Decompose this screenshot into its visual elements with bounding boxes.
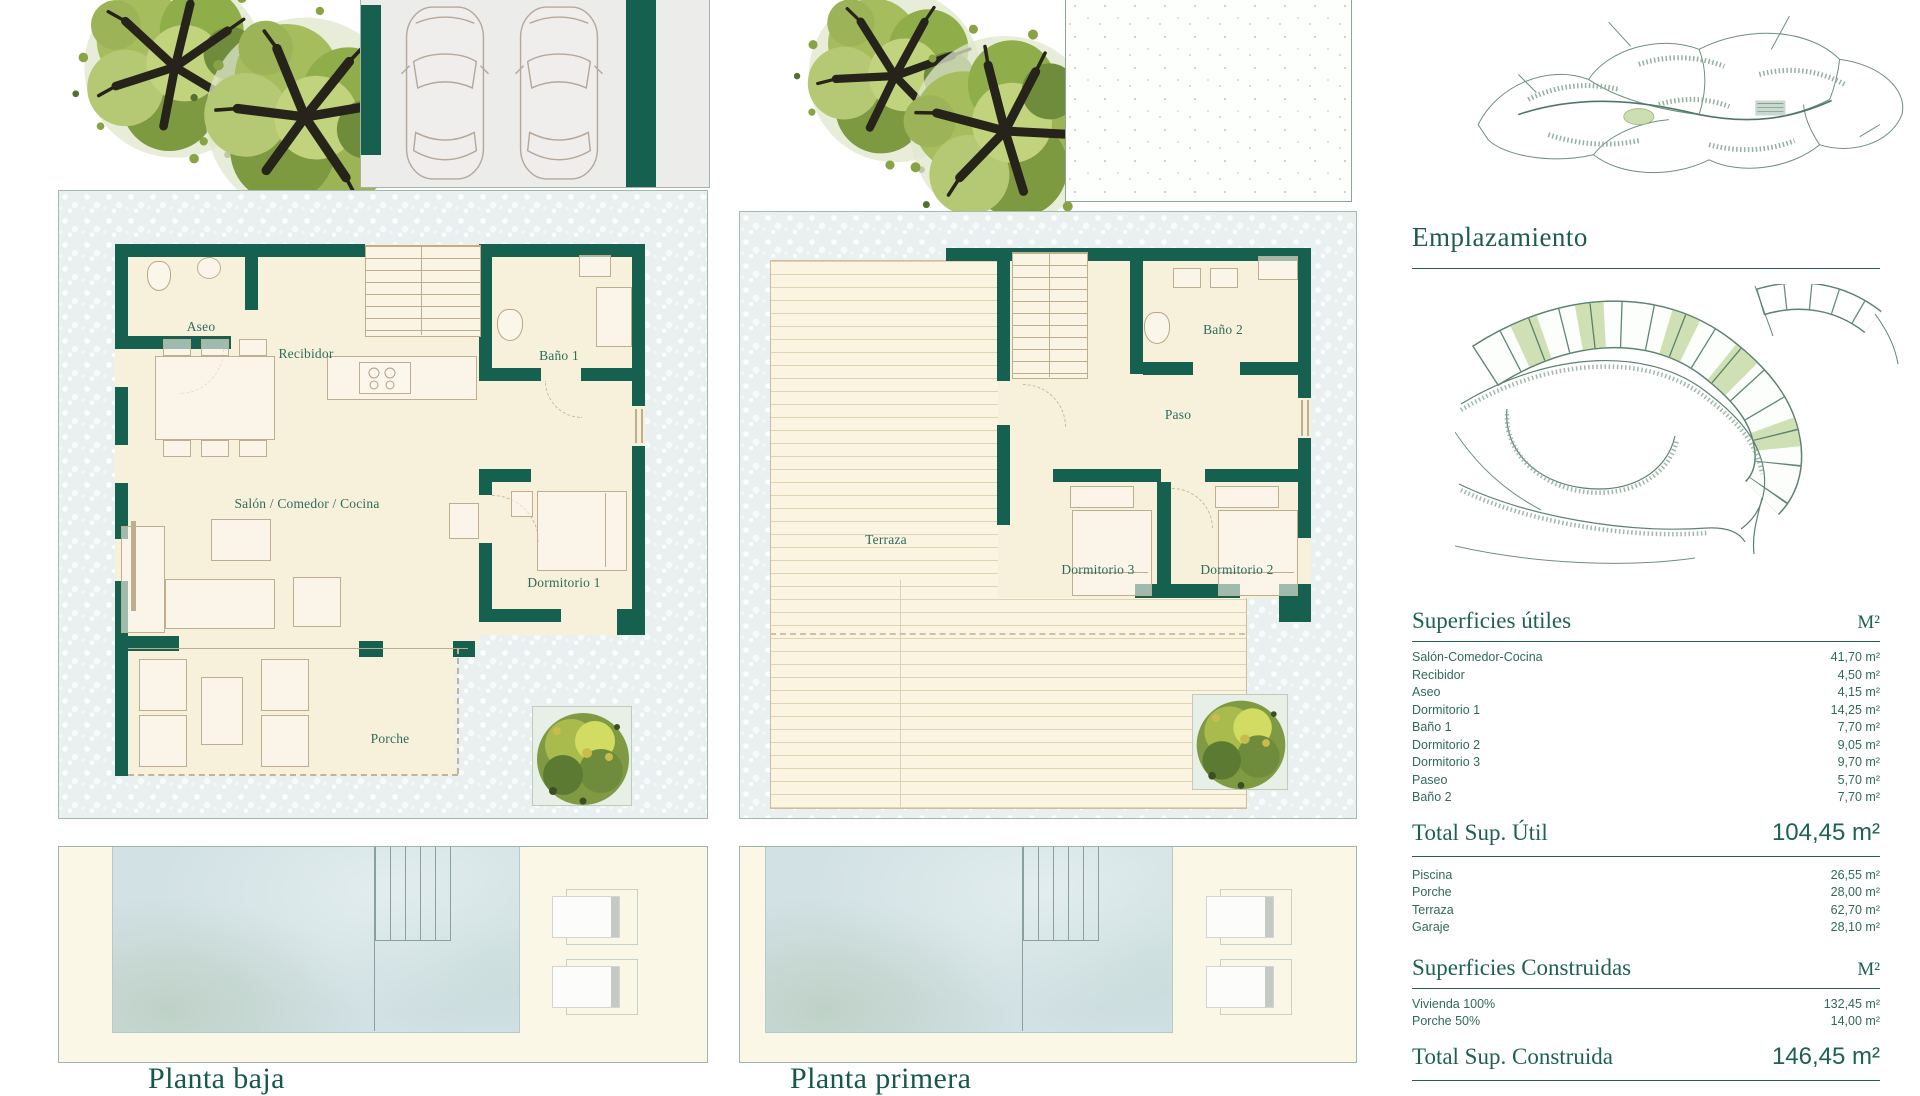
wall	[1298, 248, 1311, 398]
wall	[479, 368, 541, 381]
table-row: Porche 50%14,00 m²	[1412, 1013, 1880, 1031]
wall	[581, 368, 645, 381]
wall	[479, 609, 561, 622]
built-surfaces-header: Superficies Construidas M²	[1412, 955, 1880, 989]
row-value: 4,50 m²	[1838, 667, 1880, 685]
wall	[115, 244, 128, 336]
plan-title-ground: Planta baja	[148, 1062, 285, 1096]
unit-label: M²	[1857, 612, 1880, 634]
outdoor-rows: Piscina26,55 m² Porche28,00 m² Terraza62…	[1412, 857, 1880, 937]
hob-icon	[359, 362, 411, 394]
row-value: 5,70 m²	[1838, 772, 1880, 790]
total-label: Total Sup. Construida	[1412, 1044, 1613, 1070]
pool-divider	[1022, 846, 1023, 1031]
room-label: Dormitorio 3	[1061, 562, 1134, 578]
garage-plan	[360, 0, 710, 188]
useful-surfaces-rows: Salón-Comedor-Cocina41,70 m² Recibidor4,…	[1412, 642, 1880, 807]
kitchen-sink	[449, 503, 479, 539]
chair	[239, 339, 267, 356]
sink-icon	[1210, 268, 1238, 288]
masterplan-map	[1458, 4, 1915, 190]
row-value: 7,70 m²	[1838, 719, 1880, 737]
row-value: 14,25 m²	[1831, 702, 1880, 720]
nightstand	[511, 491, 533, 517]
wall	[617, 609, 645, 635]
table-row: Porche28,00 m²	[1412, 884, 1880, 902]
wall	[1205, 469, 1298, 482]
ground-floor-plan: Aseo Recibidor Baño 1 Salón / Comedor / …	[58, 190, 708, 819]
wall	[632, 244, 645, 406]
surfaces-panel: Superficies útiles M² Salón-Comedor-Coci…	[1412, 608, 1880, 1081]
lawn-square	[1065, 0, 1352, 202]
row-label: Dormitorio 3	[1412, 754, 1480, 772]
table-row: Recibidor4,50 m²	[1412, 667, 1880, 685]
pool-divider	[374, 846, 375, 1031]
table-row: Piscina26,55 m²	[1412, 867, 1880, 885]
sun-lounger	[1206, 889, 1292, 945]
wall	[1143, 362, 1193, 375]
chair	[201, 339, 229, 356]
wall	[997, 425, 1010, 525]
porch-edge	[128, 648, 468, 649]
sink-icon	[197, 257, 221, 279]
room-label: Dormitorio 1	[527, 575, 600, 591]
stair-rail	[1049, 252, 1050, 377]
wall	[626, 0, 656, 187]
sink-icon	[579, 255, 611, 277]
plan-title-upper: Planta primera	[790, 1062, 971, 1096]
pool	[765, 846, 1173, 1033]
bed-pillow-line	[605, 493, 606, 567]
row-label: Piscina	[1412, 867, 1452, 885]
table-row: Garaje28,10 m²	[1412, 919, 1880, 937]
divider	[1412, 268, 1880, 269]
wardrobe	[1070, 486, 1134, 508]
bed	[537, 491, 627, 571]
row-label: Porche	[1412, 884, 1452, 902]
stair-rail	[421, 245, 422, 335]
porch-dashed-edge	[128, 774, 458, 776]
chair	[163, 339, 191, 356]
wall	[1053, 469, 1161, 482]
total-value: 104,45 m²	[1772, 819, 1880, 847]
roof-section-line	[770, 633, 1245, 635]
row-label: Terraza	[1412, 902, 1454, 920]
total-built: Total Sup. Construida 146,45 m²	[1412, 1043, 1880, 1081]
pillar	[359, 641, 383, 657]
row-value: 62,70 m²	[1831, 902, 1880, 920]
room-label: Terraza	[865, 532, 907, 548]
car-icon	[399, 3, 491, 183]
car-icon	[513, 3, 605, 183]
room-label: Baño 1	[539, 348, 579, 364]
table-row: Paseo5,70 m²	[1412, 772, 1880, 790]
stairs	[365, 245, 481, 337]
sofa-chaise	[121, 526, 165, 633]
window	[1301, 400, 1303, 436]
chair	[201, 440, 229, 457]
wall	[245, 244, 258, 310]
armchair	[293, 577, 341, 627]
porch-dashed-edge	[457, 648, 459, 774]
toilet-icon	[1144, 312, 1170, 344]
chair	[239, 440, 267, 457]
row-value: 4,15 m²	[1838, 684, 1880, 702]
row-value: 7,70 m²	[1838, 789, 1880, 807]
wall	[1298, 438, 1311, 538]
deck-joint	[900, 580, 901, 807]
room-label: Baño 2	[1203, 322, 1243, 338]
pool-area-upper	[739, 846, 1357, 1063]
wall	[1240, 362, 1298, 375]
bush-icon	[1187, 689, 1295, 797]
total-label: Total Sup. Útil	[1412, 820, 1548, 846]
row-label: Salón-Comedor-Cocina	[1412, 649, 1543, 667]
sun-lounger	[552, 959, 638, 1015]
table-row: Baño 27,70 m²	[1412, 789, 1880, 807]
wall	[479, 469, 492, 495]
bush-icon	[527, 701, 639, 813]
row-label: Dormitorio 1	[1412, 702, 1480, 720]
table-row: Dormitorio 39,70 m²	[1412, 754, 1880, 772]
row-value: 14,00 m²	[1831, 1013, 1880, 1031]
sun-lounger	[1206, 959, 1292, 1015]
row-value: 41,70 m²	[1831, 649, 1880, 667]
row-label: Dormitorio 2	[1412, 737, 1480, 755]
wall	[479, 244, 645, 257]
total-useful: Total Sup. Útil 104,45 m²	[1412, 819, 1880, 857]
total-value: 146,45 m²	[1772, 1043, 1880, 1071]
bed	[1218, 510, 1298, 596]
chair	[163, 440, 191, 457]
shower-icon	[596, 287, 632, 347]
wall	[632, 446, 645, 635]
window	[641, 409, 643, 443]
window	[1307, 400, 1309, 436]
table-row: Baño 17,70 m²	[1412, 719, 1880, 737]
wall	[361, 5, 381, 155]
row-label: Garaje	[1412, 919, 1450, 937]
bed	[1072, 510, 1152, 596]
table-row: Vivienda 100%132,45 m²	[1412, 996, 1880, 1014]
row-label: Porche 50%	[1412, 1013, 1480, 1031]
row-value: 28,10 m²	[1831, 919, 1880, 937]
wall	[115, 244, 365, 257]
row-label: Vivienda 100%	[1412, 996, 1495, 1014]
row-label: Baño 2	[1412, 789, 1452, 807]
sun-lounger	[552, 889, 638, 945]
pool-steps	[374, 846, 451, 941]
row-value: 9,05 m²	[1838, 737, 1880, 755]
row-value: 9,70 m²	[1838, 754, 1880, 772]
table-title: Superficies Construidas	[1412, 955, 1631, 981]
room-label: Salón / Comedor / Cocina	[234, 496, 379, 512]
stairs	[1012, 252, 1088, 379]
row-label: Paseo	[1412, 772, 1447, 790]
toilet-icon	[147, 261, 171, 291]
sink-icon	[1173, 268, 1201, 288]
room-label: Dormitorio 2	[1200, 562, 1273, 578]
pool-steps	[1022, 846, 1099, 941]
wall	[479, 543, 492, 609]
table-row: Terraza62,70 m²	[1412, 902, 1880, 920]
row-value: 26,55 m²	[1831, 867, 1880, 885]
sofa	[165, 579, 275, 629]
room-label: Aseo	[187, 319, 216, 335]
wall	[1157, 482, 1171, 598]
room-label: Porche	[371, 731, 410, 747]
window	[635, 409, 637, 443]
wardrobe	[1215, 486, 1279, 508]
wall	[997, 248, 1010, 381]
pool	[112, 846, 520, 1033]
porch-chair	[261, 659, 309, 711]
pool-area-ground	[58, 846, 708, 1063]
brochure-page: { "plans": { "ground": { "title": "Plant…	[0, 0, 1920, 1080]
dining-table	[155, 356, 275, 440]
porch-chair	[261, 715, 309, 767]
table-title: Superficies útiles	[1412, 608, 1571, 634]
table-row: Aseo4,15 m²	[1412, 684, 1880, 702]
room-label: Paso	[1165, 407, 1191, 423]
upper-floor-plan: Terraza Baño 2 Paso Dormitorio 3 Dormito…	[739, 211, 1357, 819]
location-title: Emplazamiento	[1412, 222, 1588, 253]
porch-chair	[139, 659, 187, 711]
shower-icon	[1258, 256, 1298, 280]
toilet-icon	[497, 309, 523, 341]
room-label: Recibidor	[278, 346, 333, 362]
porch-table	[201, 677, 243, 745]
table-row: Dormitorio 29,05 m²	[1412, 737, 1880, 755]
row-label: Baño 1	[1412, 719, 1452, 737]
row-label: Recibidor	[1412, 667, 1465, 685]
tv-unit	[131, 521, 136, 611]
porch-chair	[139, 715, 187, 767]
built-surfaces-rows: Vivienda 100%132,45 m² Porche 50%14,00 m…	[1412, 989, 1880, 1031]
table-row: Dormitorio 114,25 m²	[1412, 702, 1880, 720]
wall	[1130, 248, 1143, 374]
row-value: 132,45 m²	[1824, 996, 1880, 1014]
unit-label: M²	[1857, 959, 1880, 981]
row-label: Aseo	[1412, 684, 1441, 702]
coffee-table	[211, 519, 271, 561]
row-value: 28,00 m²	[1831, 884, 1880, 902]
useful-surfaces-header: Superficies útiles M²	[1412, 608, 1880, 642]
wall	[115, 387, 128, 445]
table-row: Salón-Comedor-Cocina41,70 m²	[1412, 649, 1880, 667]
site-map	[1455, 284, 1915, 569]
